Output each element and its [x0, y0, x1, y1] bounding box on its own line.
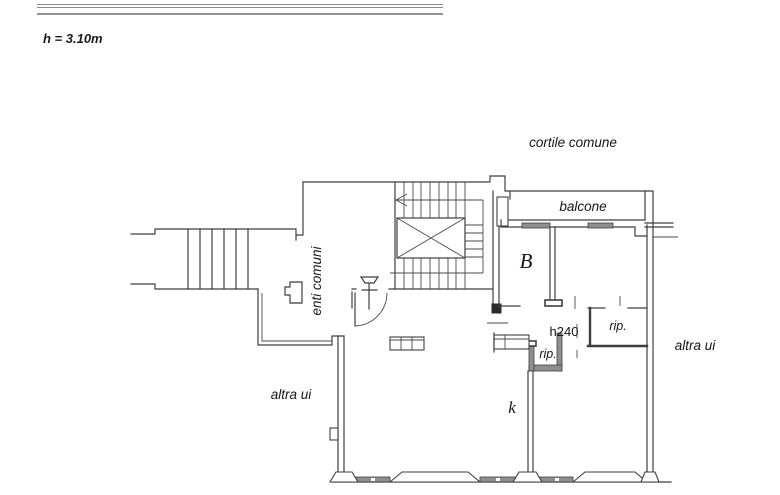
common-hall — [258, 282, 344, 345]
label-closet-bottom: rip. — [539, 347, 556, 361]
closet-wall — [529, 346, 534, 371]
label-h240: h240 — [550, 324, 579, 339]
kitchen-wall — [528, 371, 533, 472]
ceiling-height-note: h = 3.10m — [43, 31, 103, 46]
stair-direction-line — [396, 194, 483, 206]
stair-steps-bottom — [404, 258, 465, 289]
radiator — [390, 337, 424, 350]
floor-plan-drawing: h = 3.10m — [0, 0, 780, 495]
left-staircase-corridor — [131, 182, 303, 289]
door-marker-symbol — [361, 277, 378, 309]
label-closet-right: rip. — [609, 319, 626, 333]
wall-pier — [330, 472, 358, 482]
apartment-west-wall — [330, 336, 344, 472]
label-room-b: B — [520, 249, 533, 273]
door-jamb-cap — [545, 300, 562, 306]
window-large-right — [573, 472, 647, 482]
shaft-symbol — [285, 282, 302, 303]
balcony-door-left — [522, 223, 550, 228]
balcony-door-right — [588, 223, 613, 228]
wall-pier — [641, 472, 659, 482]
door-swing-arc — [355, 293, 387, 326]
wall-pilaster — [330, 428, 338, 440]
label-common-areas: enti comuni — [309, 245, 324, 315]
entrance-door — [355, 277, 387, 326]
label-kitchen: k — [508, 398, 516, 417]
right-outer-wall — [645, 223, 678, 472]
floor-plan-page: h = 3.10m — [0, 0, 780, 495]
north-wall — [501, 220, 647, 236]
stair-steps-right — [465, 225, 483, 257]
label-other-unit-right: altra ui — [675, 338, 717, 353]
counter — [494, 333, 529, 352]
header-rules — [37, 5, 443, 15]
flue-niche — [497, 197, 508, 226]
label-courtyard: cortile comune — [529, 135, 617, 150]
window-large-left — [390, 472, 480, 482]
pillar-filled — [492, 304, 501, 313]
south-wall — [330, 472, 671, 482]
wall-pier — [513, 472, 542, 482]
label-balcony: balcone — [559, 199, 606, 214]
label-other-unit-left: altra ui — [271, 387, 313, 402]
